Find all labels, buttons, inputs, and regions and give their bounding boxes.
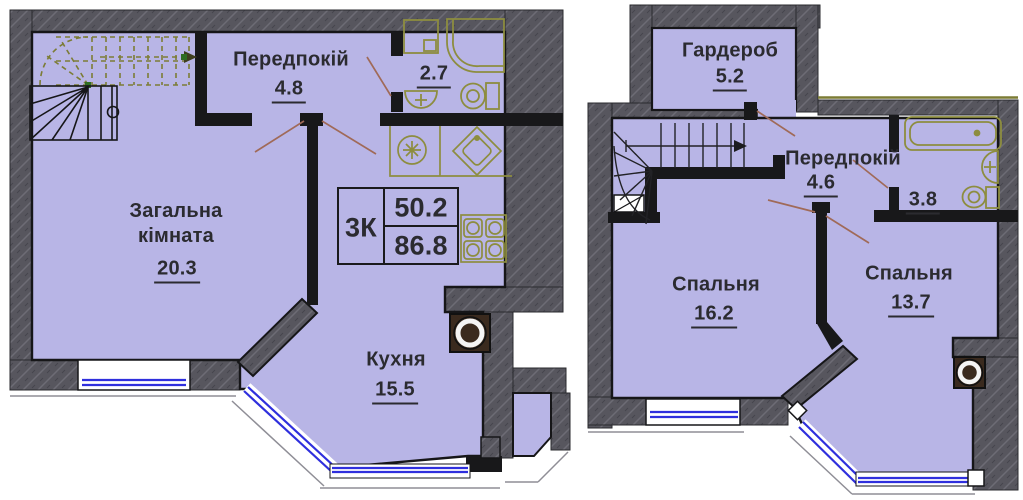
- room-label-wardrobe: Гардероб: [682, 40, 778, 63]
- room-label-hallway-2: Передпокій: [785, 148, 901, 171]
- room-label-kitchen: Кухня: [366, 349, 425, 372]
- room-area-wardrobe: 5.2: [713, 66, 747, 92]
- floor-plan-canvas: Передпокій 4.8 2.7 Загальна кімната 20.3…: [0, 0, 1023, 500]
- floor-plan-drawing: [0, 0, 1023, 500]
- room-area-bedroom-1: 16.2: [691, 303, 737, 329]
- room-area-bathroom-2: 3.8: [906, 189, 940, 215]
- room-area-hallway-2: 4.6: [804, 172, 838, 198]
- room-label-bedroom-2: Спальня: [865, 263, 953, 286]
- ventilation-shaft-icon: [954, 357, 985, 388]
- ventilation-shaft-icon: [450, 314, 490, 352]
- room-area-bathroom-1: 2.7: [417, 63, 451, 89]
- room-area-bedroom-2: 13.7: [888, 292, 934, 318]
- left-bay-post: [481, 437, 500, 458]
- info-box-lower-area: 86.8: [394, 231, 447, 262]
- info-box-upper-area: 50.2: [394, 193, 447, 224]
- right-plan: [588, 5, 1018, 494]
- room-label-living-room: Загальна кімната: [110, 199, 242, 249]
- info-box-type: 3К: [345, 213, 377, 244]
- room-label-bedroom-1: Спальня: [672, 274, 760, 297]
- room-area-kitchen: 15.5: [372, 379, 418, 405]
- left-plan-niche: [513, 393, 551, 456]
- stair-node-dot: [181, 54, 187, 60]
- room-area-living-room: 20.3: [154, 258, 200, 284]
- room-label-hallway-1: Передпокій: [233, 49, 349, 72]
- room-area-hallway-1: 4.8: [272, 78, 306, 104]
